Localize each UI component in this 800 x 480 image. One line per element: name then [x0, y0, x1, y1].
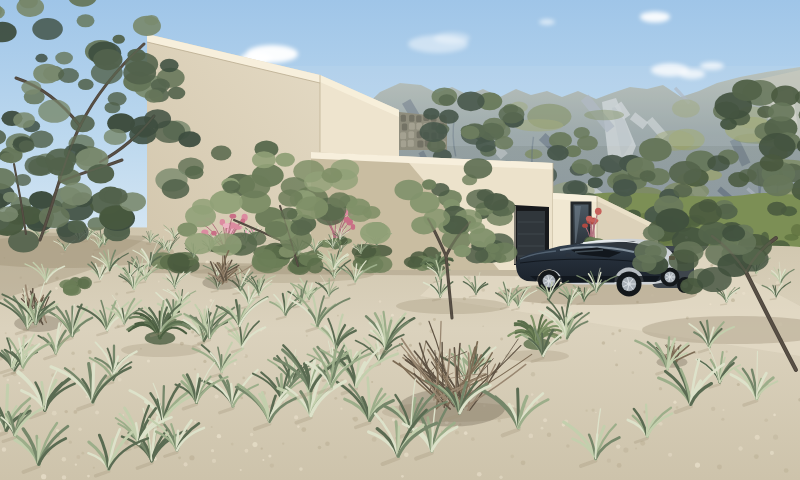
sand-speckle — [234, 363, 237, 366]
sand-speckle — [184, 462, 188, 466]
foliage-clump — [732, 79, 762, 101]
sand-speckle — [65, 410, 68, 413]
foliage-clump — [113, 35, 125, 44]
sand-speckle — [735, 292, 737, 294]
sand-speckle — [392, 418, 395, 421]
sand-speckle — [768, 278, 770, 280]
tuft-shadow — [82, 241, 87, 242]
wheel — [617, 272, 642, 297]
sand-speckle — [776, 281, 779, 284]
sand-speckle — [742, 292, 745, 295]
sand-speckle — [521, 460, 526, 465]
sand-speckle — [631, 371, 634, 374]
sand-speckle — [471, 437, 475, 441]
foliage-clump — [643, 225, 665, 241]
flower-bloom — [586, 216, 593, 222]
foliage-clump — [689, 201, 722, 225]
stone — [409, 123, 415, 130]
sand-speckle — [261, 448, 263, 450]
foliage-clump — [420, 122, 448, 142]
sand-speckle — [673, 401, 676, 404]
sand-speckle — [585, 410, 587, 412]
sand-speckle — [477, 472, 482, 477]
foliage-clump — [707, 155, 729, 171]
sand-speckle — [586, 316, 590, 320]
foliage-clump — [211, 146, 232, 161]
sand-speckle — [372, 437, 377, 442]
sand-speckle — [618, 329, 621, 332]
sand-speckle — [210, 299, 213, 302]
sand-speckle — [344, 456, 347, 459]
sand-speckle — [784, 468, 789, 473]
foliage-clump — [669, 161, 702, 185]
stone — [409, 115, 414, 122]
sand-speckle — [353, 417, 358, 422]
sand-speckle — [467, 276, 470, 279]
foliage-clump — [33, 64, 61, 84]
shrub-foliage — [167, 253, 189, 272]
shrub-foliage — [78, 277, 92, 290]
tuft-shadow — [140, 282, 146, 283]
foliage-clump — [457, 91, 484, 111]
sand-speckle — [676, 406, 679, 409]
sand-speckle — [531, 393, 534, 396]
sand-speckle — [464, 431, 468, 435]
sand-speckle — [371, 381, 373, 383]
sand-speckle — [404, 452, 409, 457]
foliage-clump — [360, 222, 391, 244]
foliage-clump — [78, 79, 94, 90]
grass-blade — [646, 405, 647, 437]
tuft-shadow — [356, 255, 361, 256]
foliage-clump — [422, 179, 436, 189]
sand-speckle — [147, 360, 150, 363]
foliage-clump — [223, 181, 241, 194]
foliage-clump — [439, 110, 459, 124]
foliage-clump — [38, 100, 70, 123]
stone — [401, 140, 406, 147]
sand-speckle — [541, 427, 544, 430]
hub — [669, 276, 672, 279]
sand-speckle — [754, 454, 759, 459]
sand-speckle — [78, 427, 82, 431]
sand-speckle — [2, 447, 6, 451]
foliage-clump — [60, 183, 92, 206]
foliage-clump — [632, 255, 656, 272]
foliage-clump — [0, 152, 14, 162]
sand-speckle — [86, 396, 88, 398]
sand-speckle — [318, 446, 321, 449]
hub — [627, 282, 631, 286]
foliage-clump — [281, 208, 298, 220]
foliage-clump — [424, 209, 451, 228]
sand-speckle — [659, 387, 662, 390]
sand-speckle — [334, 397, 337, 400]
foliage-clump — [454, 245, 471, 257]
sand-speckle — [158, 281, 160, 283]
foliage-clump — [479, 123, 504, 141]
sand-speckle — [194, 421, 196, 423]
sand-speckle — [543, 418, 547, 422]
tuft-shadow — [164, 254, 169, 255]
foliage-clump — [464, 158, 493, 179]
cloud — [640, 12, 670, 23]
sand-speckle — [639, 351, 642, 354]
sand-speckle — [87, 475, 90, 478]
sand-speckle — [7, 378, 10, 381]
coupe-mirror — [566, 254, 571, 258]
sand-speckle — [252, 442, 257, 447]
sand-speckle — [73, 410, 77, 414]
foliage-clump — [639, 138, 672, 162]
stone — [417, 140, 423, 147]
sand-speckle — [178, 456, 181, 459]
sand-speckle — [212, 459, 216, 463]
foliage-clump — [210, 233, 242, 256]
shrub-foliage — [252, 249, 277, 271]
foliage-clump — [767, 202, 787, 216]
sand-speckle — [721, 418, 724, 421]
foliage-clump — [145, 89, 164, 103]
sand-speckle — [615, 363, 618, 366]
sand-speckle — [731, 298, 735, 302]
foliage-clump — [185, 166, 204, 179]
foliage-clump — [760, 154, 784, 171]
tuft-shadow — [770, 299, 776, 300]
foliage-clump — [275, 153, 295, 167]
foliage-clump — [768, 102, 795, 121]
seed-stem — [757, 351, 758, 398]
sand-speckle — [348, 326, 350, 328]
sand-speckle — [262, 459, 264, 461]
sand-speckle — [611, 332, 614, 335]
sand-speckle — [635, 448, 637, 450]
flower-bloom — [351, 224, 355, 230]
sand-speckle — [401, 475, 404, 478]
sand-speckle — [282, 443, 284, 445]
sand-speckle — [455, 430, 459, 434]
flower-bloom — [595, 208, 602, 215]
sand-speckle — [510, 455, 514, 459]
sand-speckle — [379, 300, 381, 302]
sand-speckle — [240, 469, 242, 471]
sand-speckle — [244, 355, 246, 357]
sand-speckle — [52, 411, 57, 416]
shrub-foliage — [307, 258, 323, 274]
foliage-clump — [673, 184, 692, 198]
sand-speckle — [62, 457, 66, 461]
sand-speckle — [194, 368, 196, 370]
sand-speckle — [722, 409, 724, 411]
foliage-clump — [237, 174, 270, 198]
sand-speckle — [93, 467, 95, 469]
sand-speckle — [71, 351, 74, 354]
shrub-foliage — [404, 256, 424, 267]
foliage-clump — [168, 87, 185, 100]
foliage-clump — [108, 92, 127, 106]
sand-speckle — [614, 350, 616, 352]
foliage-clump — [720, 118, 737, 130]
foliage-clump — [185, 233, 214, 254]
tuft-shadow — [94, 281, 100, 282]
foliage-clump — [55, 52, 73, 65]
sand-speckle — [547, 433, 551, 437]
sand-speckle — [773, 435, 778, 440]
sand-speckle — [531, 372, 535, 376]
architectural-rendering-viewport — [0, 0, 800, 480]
sand-speckle — [764, 418, 768, 422]
foliage-clump — [669, 250, 699, 272]
sand-speckle — [500, 338, 503, 341]
sand-speckle — [211, 449, 214, 452]
shrub-foliage — [367, 256, 392, 273]
sand-speckle — [711, 407, 715, 411]
plant-shadow — [121, 343, 201, 357]
foliage-clump — [16, 206, 42, 225]
sand-speckle — [773, 414, 776, 417]
sand-speckle — [115, 292, 118, 295]
flower-bloom — [211, 231, 217, 236]
foliage-clump — [144, 109, 171, 128]
foliage-clump — [600, 155, 625, 173]
foliage-clump — [58, 68, 79, 83]
foliage-clump — [296, 196, 328, 219]
sand-speckle — [418, 322, 421, 325]
sand-speckle — [214, 394, 218, 398]
foliage-clump — [477, 189, 494, 201]
sand-speckle — [481, 288, 485, 292]
foliage-clump — [32, 18, 63, 40]
tuft-shadow — [310, 254, 315, 255]
foliage-clump — [45, 148, 76, 170]
flower-bloom — [234, 224, 239, 229]
sand-speckle — [297, 425, 300, 428]
flower-bloom — [582, 224, 588, 228]
mountain-vegetation — [525, 149, 542, 159]
foliage-clump — [728, 172, 749, 187]
sand-speckle — [340, 408, 342, 410]
foliage-clump — [461, 126, 480, 139]
sand-speckle — [88, 350, 92, 354]
sand-speckle — [270, 463, 274, 467]
foliage-clump — [322, 168, 343, 183]
sand-speckle — [268, 454, 271, 457]
sand-speckle — [242, 377, 245, 380]
sand-speckle — [695, 462, 700, 467]
foliage-clump — [763, 174, 793, 196]
sand-speckle — [55, 287, 58, 290]
foliage-clump — [104, 129, 127, 145]
foliage-clump — [439, 94, 455, 106]
flower-bloom — [344, 217, 351, 223]
foliage-clump — [93, 49, 122, 70]
sand-speckle — [231, 443, 234, 446]
sand-speckle — [433, 318, 436, 321]
sand-speckle — [482, 325, 484, 327]
sand-speckle — [595, 412, 597, 414]
sand-speckle — [499, 476, 502, 479]
foliage-clump — [423, 108, 439, 120]
foliage-clump — [160, 59, 179, 72]
sand-speckle — [72, 367, 75, 370]
hub — [547, 279, 550, 282]
sand-speckle — [337, 315, 339, 317]
sand-speckle — [591, 409, 594, 412]
sand-speckle — [211, 426, 213, 428]
foliage-clump — [13, 112, 35, 128]
sand-speckle — [95, 410, 99, 414]
sand-speckle — [717, 465, 722, 470]
sand-speckle — [709, 303, 711, 305]
foliage-clump — [547, 145, 569, 161]
sand-speckle — [118, 378, 122, 382]
sand-speckle — [69, 441, 72, 444]
cloud — [434, 32, 470, 44]
sand-speckle — [56, 429, 59, 432]
stone — [408, 140, 414, 147]
foliage-clump — [35, 54, 47, 63]
stone — [401, 115, 406, 122]
sand-speckle — [240, 397, 243, 400]
sand-speckle — [737, 383, 740, 386]
foliage-clump — [640, 170, 656, 182]
stone — [402, 124, 407, 131]
sand-speckle — [471, 290, 473, 292]
foliage-clump — [490, 243, 518, 263]
cloud — [539, 19, 555, 25]
sand-speckle — [75, 464, 77, 466]
sand-speckle — [81, 452, 84, 455]
foliage-clump — [105, 188, 128, 205]
sand-speckle — [709, 352, 711, 354]
flower-bloom — [230, 214, 237, 219]
sand-speckle — [668, 453, 672, 457]
sand-speckle — [617, 463, 622, 468]
stone — [416, 115, 421, 122]
sand-speckle — [607, 459, 611, 463]
foliage-clump — [722, 225, 745, 241]
stone — [408, 131, 414, 138]
sand-speckle — [62, 475, 66, 479]
sand-speckle — [245, 449, 249, 453]
sand-speckle — [18, 382, 20, 384]
tuft-shadow — [94, 250, 99, 251]
sand-speckle — [325, 441, 330, 446]
foliage-clump — [162, 179, 190, 199]
sand-speckle — [755, 435, 760, 440]
foliage-clump — [125, 52, 158, 76]
foliage-clump — [588, 177, 603, 188]
sand-speckle — [217, 434, 221, 438]
sand-speckle — [306, 335, 308, 337]
sand-speckle — [76, 455, 80, 459]
sand-speckle — [409, 344, 412, 347]
foliage-clump — [133, 16, 161, 36]
sand-speckle — [397, 350, 399, 352]
foliage-clump — [363, 206, 381, 219]
sand-speckle — [623, 448, 628, 453]
sand-speckle — [726, 351, 728, 353]
sand-speckle — [711, 264, 713, 266]
foliage-clump — [77, 14, 95, 27]
sand-speckle — [515, 276, 519, 280]
sand-speckle — [299, 467, 303, 471]
tuft-shadow — [169, 240, 174, 241]
rendered-scene — [0, 0, 800, 480]
foliage-clump — [19, 140, 35, 151]
foliage-clump — [178, 131, 200, 147]
foliage-clump — [39, 206, 70, 228]
sand-speckle — [770, 451, 774, 455]
sand-speckle — [191, 331, 194, 334]
sand-speckle — [616, 444, 620, 448]
sand-speckle — [203, 360, 206, 363]
sand-speckle — [532, 302, 534, 304]
foliage-clump — [252, 151, 276, 168]
stone — [400, 132, 406, 139]
tuft-shadow — [721, 304, 727, 305]
sand-speckle — [391, 314, 394, 317]
sand-speckle — [528, 434, 533, 439]
sand-speckle — [301, 427, 306, 432]
foliage-clump — [210, 190, 243, 214]
sand-speckle — [41, 474, 46, 479]
sand-speckle — [294, 415, 298, 419]
foliage-clump — [3, 192, 18, 203]
foliage-clump — [572, 159, 593, 174]
foliage-clump — [290, 220, 312, 236]
sand-speckle — [602, 341, 606, 345]
foliage-clump — [577, 135, 598, 150]
sand-speckle — [5, 332, 7, 334]
foliage-clump — [394, 180, 423, 201]
foliage-clump — [468, 222, 485, 234]
sand-speckle — [738, 446, 742, 450]
foliage-clump — [613, 179, 637, 196]
sand-speckle — [566, 444, 569, 447]
sand-speckle — [731, 287, 733, 289]
sand-speckle — [250, 433, 253, 436]
sand-speckle — [189, 455, 194, 460]
foliage-clump — [68, 220, 86, 233]
